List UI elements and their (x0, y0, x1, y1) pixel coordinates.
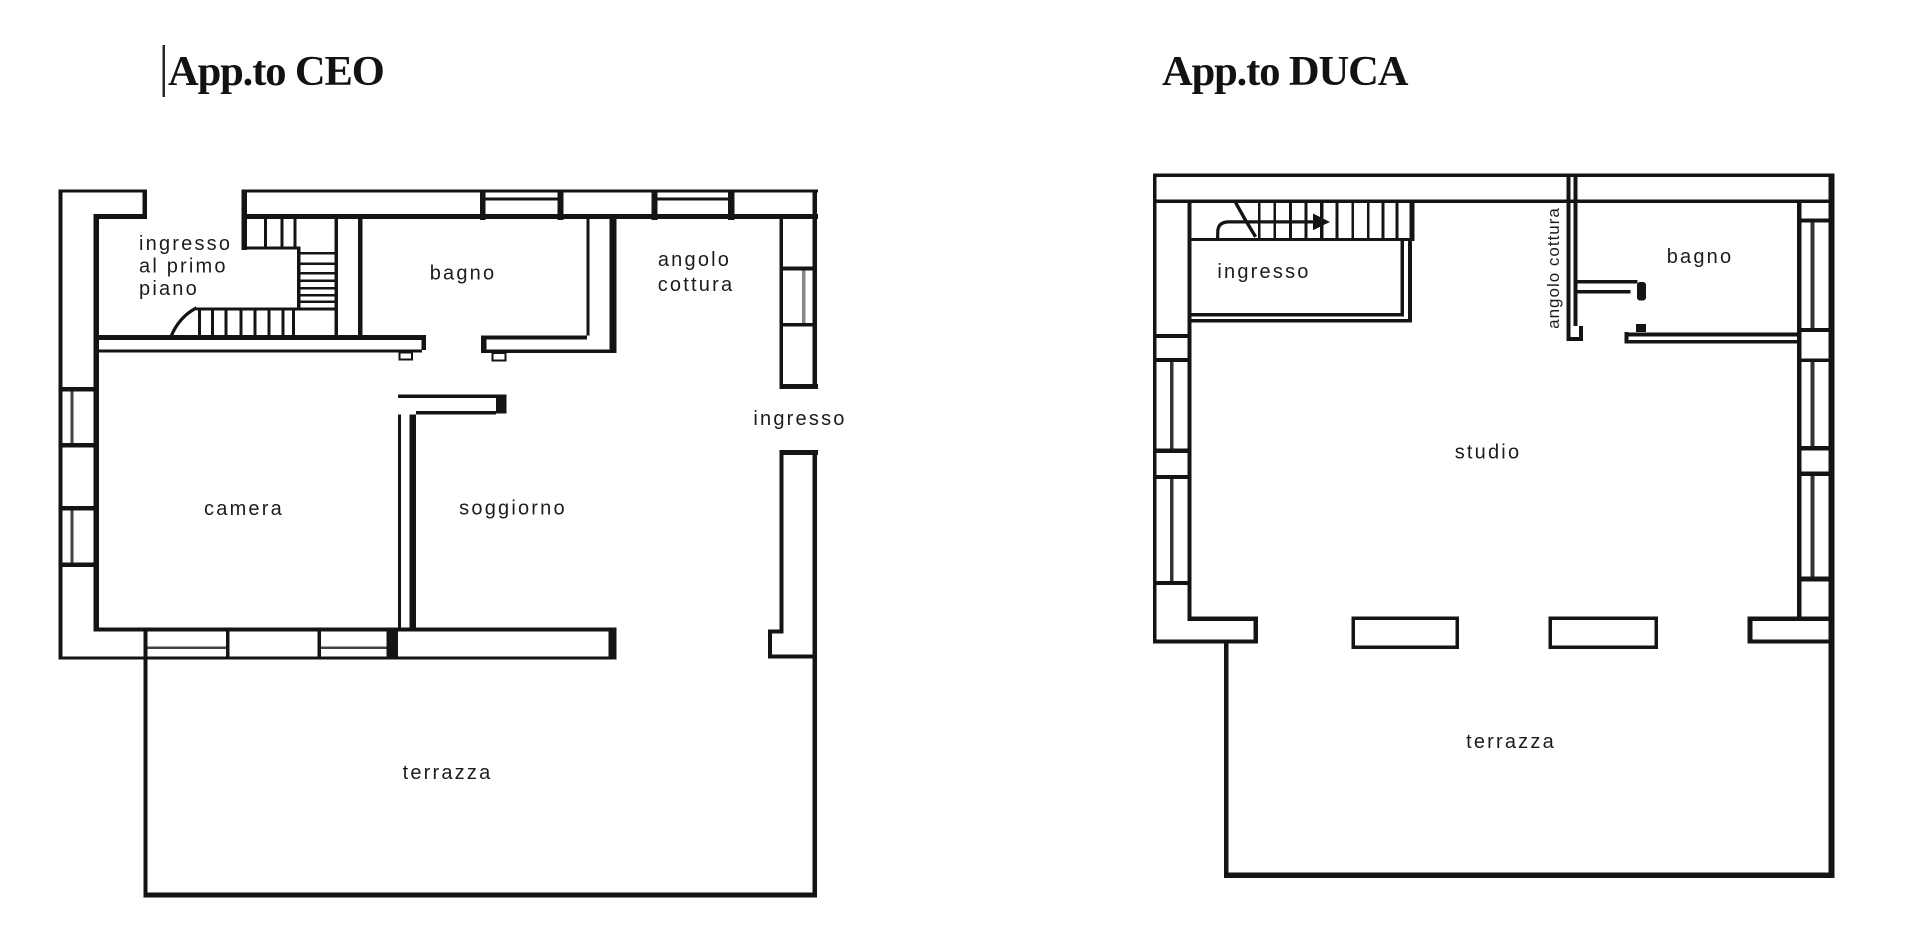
svg-text:soggiorno: soggiorno (459, 498, 567, 520)
svg-text:angolo cottura: angolo cottura (1544, 207, 1563, 329)
svg-text:angolo: angolo (658, 249, 731, 271)
svg-text:terrazza: terrazza (403, 762, 493, 784)
svg-text:ingresso: ingresso (139, 233, 232, 255)
svg-text:bagno: bagno (1667, 246, 1734, 268)
svg-text:al primo: al primo (139, 256, 228, 278)
svg-text:piano: piano (139, 278, 199, 300)
svg-text:App.to DUCA: App.to DUCA (1162, 48, 1409, 95)
svg-text:terrazza: terrazza (1466, 731, 1556, 753)
svg-text:App.to CEO: App.to CEO (168, 48, 384, 95)
svg-text:ingresso: ingresso (753, 408, 846, 430)
svg-text:camera: camera (204, 498, 284, 520)
svg-text:cottura: cottura (658, 274, 735, 296)
svg-text:ingresso: ingresso (1217, 261, 1310, 283)
svg-text:bagno: bagno (430, 263, 497, 285)
svg-text:studio: studio (1455, 442, 1522, 464)
